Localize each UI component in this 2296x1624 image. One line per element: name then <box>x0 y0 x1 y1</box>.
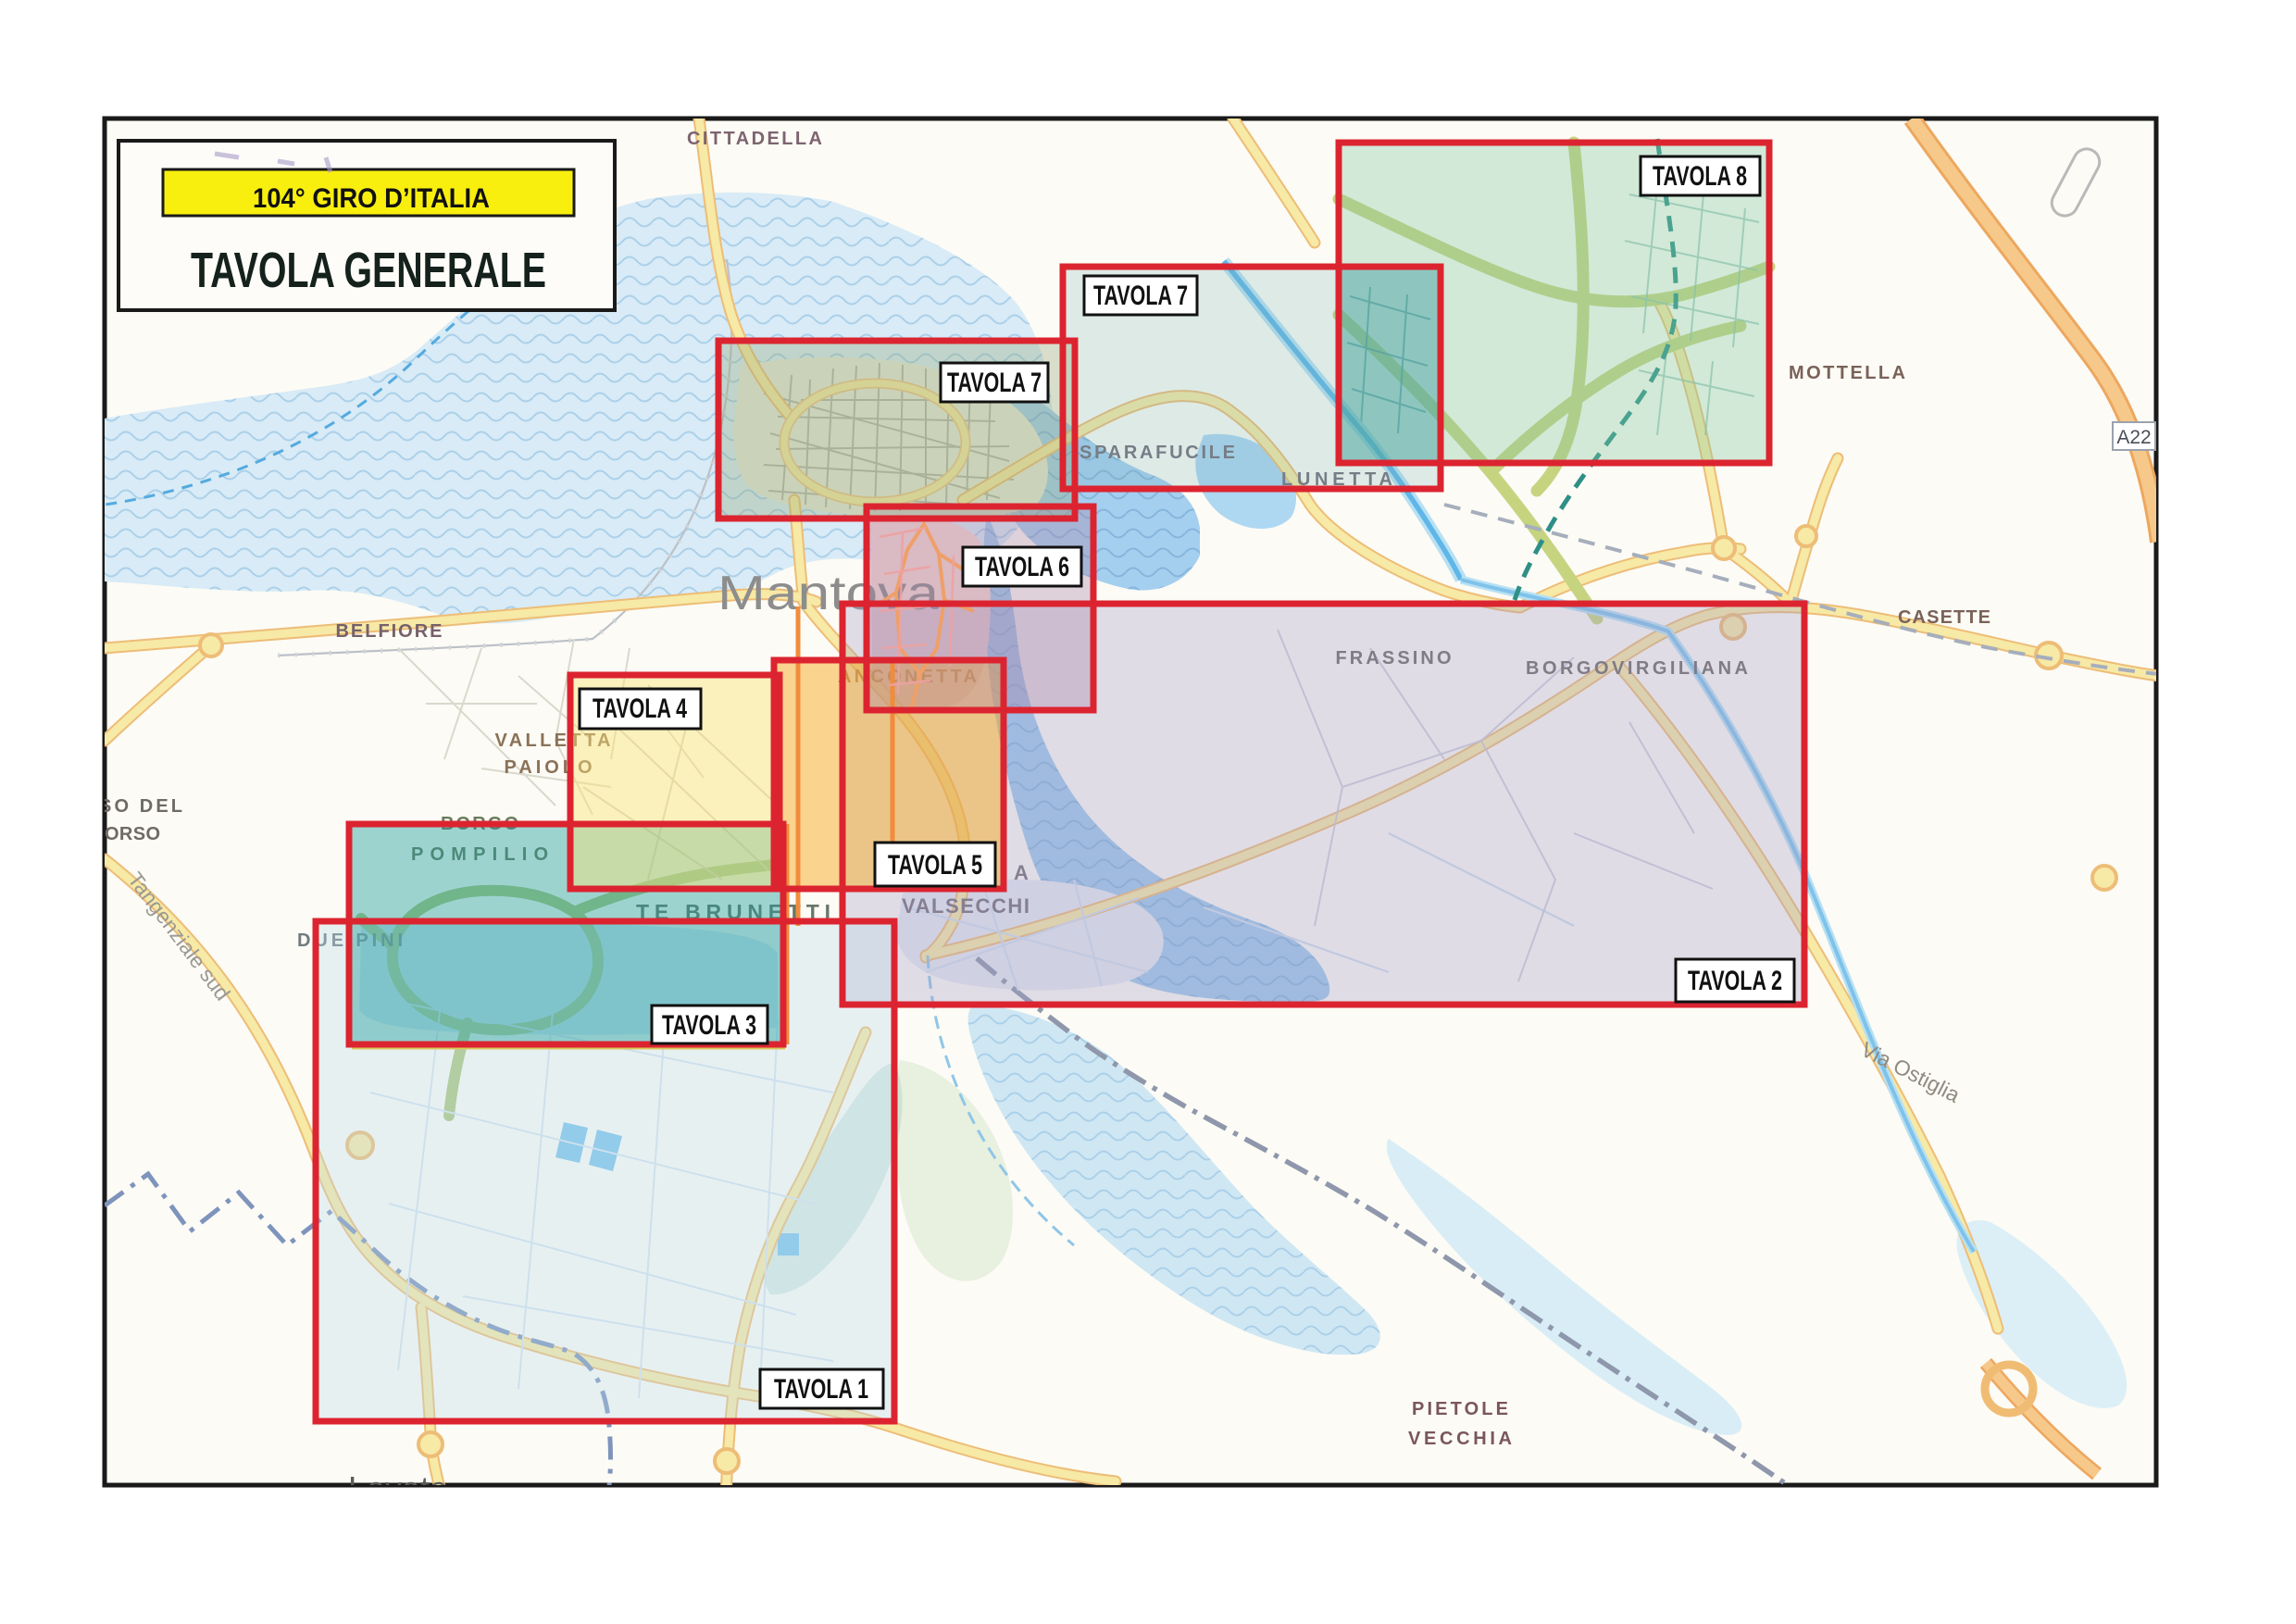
svg-text:TAVOLA 5: TAVOLA 5 <box>888 850 982 881</box>
svg-text:BELFIORE: BELFIORE <box>336 621 443 642</box>
svg-text:TAVOLA 6: TAVOLA 6 <box>975 552 1069 582</box>
svg-text:MOTTELLA: MOTTELLA <box>1789 363 1905 383</box>
svg-text:TAVOLA 8: TAVOLA 8 <box>1653 161 1747 192</box>
svg-text:TAVOLA 7: TAVOLA 7 <box>1093 281 1188 311</box>
svg-text:TAVOLA 4: TAVOLA 4 <box>593 693 687 724</box>
svg-text:ORSO: ORSO <box>105 824 160 844</box>
svg-text:TAVOLA GENERALE: TAVOLA GENERALE <box>191 243 546 298</box>
svg-text:TAVOLA 2: TAVOLA 2 <box>1688 966 1782 996</box>
svg-text:A22: A22 <box>2116 427 2151 448</box>
svg-text:CITTADELLA: CITTADELLA <box>687 129 822 149</box>
svg-text:TAVOLA 7: TAVOLA 7 <box>947 368 1042 398</box>
svg-text:104° GIRO D’ITALIA: 104° GIRO D’ITALIA <box>253 183 490 214</box>
svg-text:TAVOLA 1: TAVOLA 1 <box>774 1374 868 1405</box>
svg-text:CASETTE: CASETTE <box>1898 607 1990 628</box>
svg-text:TAVOLA 3: TAVOLA 3 <box>662 1010 756 1041</box>
